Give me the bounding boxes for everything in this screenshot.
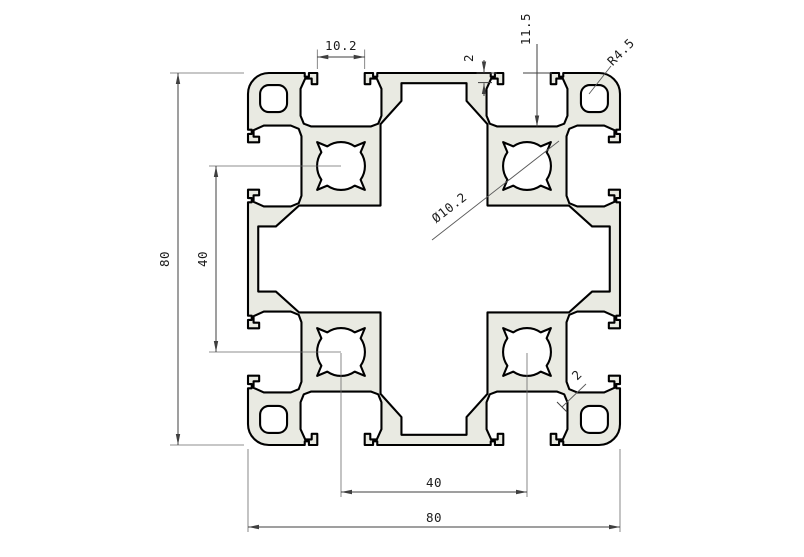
dimension-label-hole-pitch-vertical: 40 (195, 251, 210, 267)
technical-drawing: 10.2 2 11.5 R4.5 Ø10.2 (0, 0, 804, 557)
dimension-label-hole-diameter: Ø10.2 (429, 189, 470, 226)
dimension-slot-opening: 10.2 (317, 38, 364, 69)
dimension-label-hole-pitch-horizontal: 40 (426, 475, 442, 490)
dimension-label-rib-wall: 2 (569, 367, 585, 383)
dimension-label-slot-opening: 10.2 (325, 38, 357, 53)
dimension-label-corner-radius: R4.5 (604, 35, 637, 68)
profile-body (248, 73, 620, 445)
dimension-label-slot-depth: 11.5 (518, 13, 533, 45)
drawing-canvas: 10.2 2 11.5 R4.5 Ø10.2 (0, 0, 804, 557)
dimension-overall-width: 80 (248, 449, 620, 532)
dimension-label-overall-height: 80 (157, 251, 172, 267)
dimension-slot-depth: 11.5 (518, 13, 552, 127)
dimension-label-top-wall: 2 (461, 54, 476, 62)
dimension-label-overall-width: 80 (426, 510, 442, 525)
